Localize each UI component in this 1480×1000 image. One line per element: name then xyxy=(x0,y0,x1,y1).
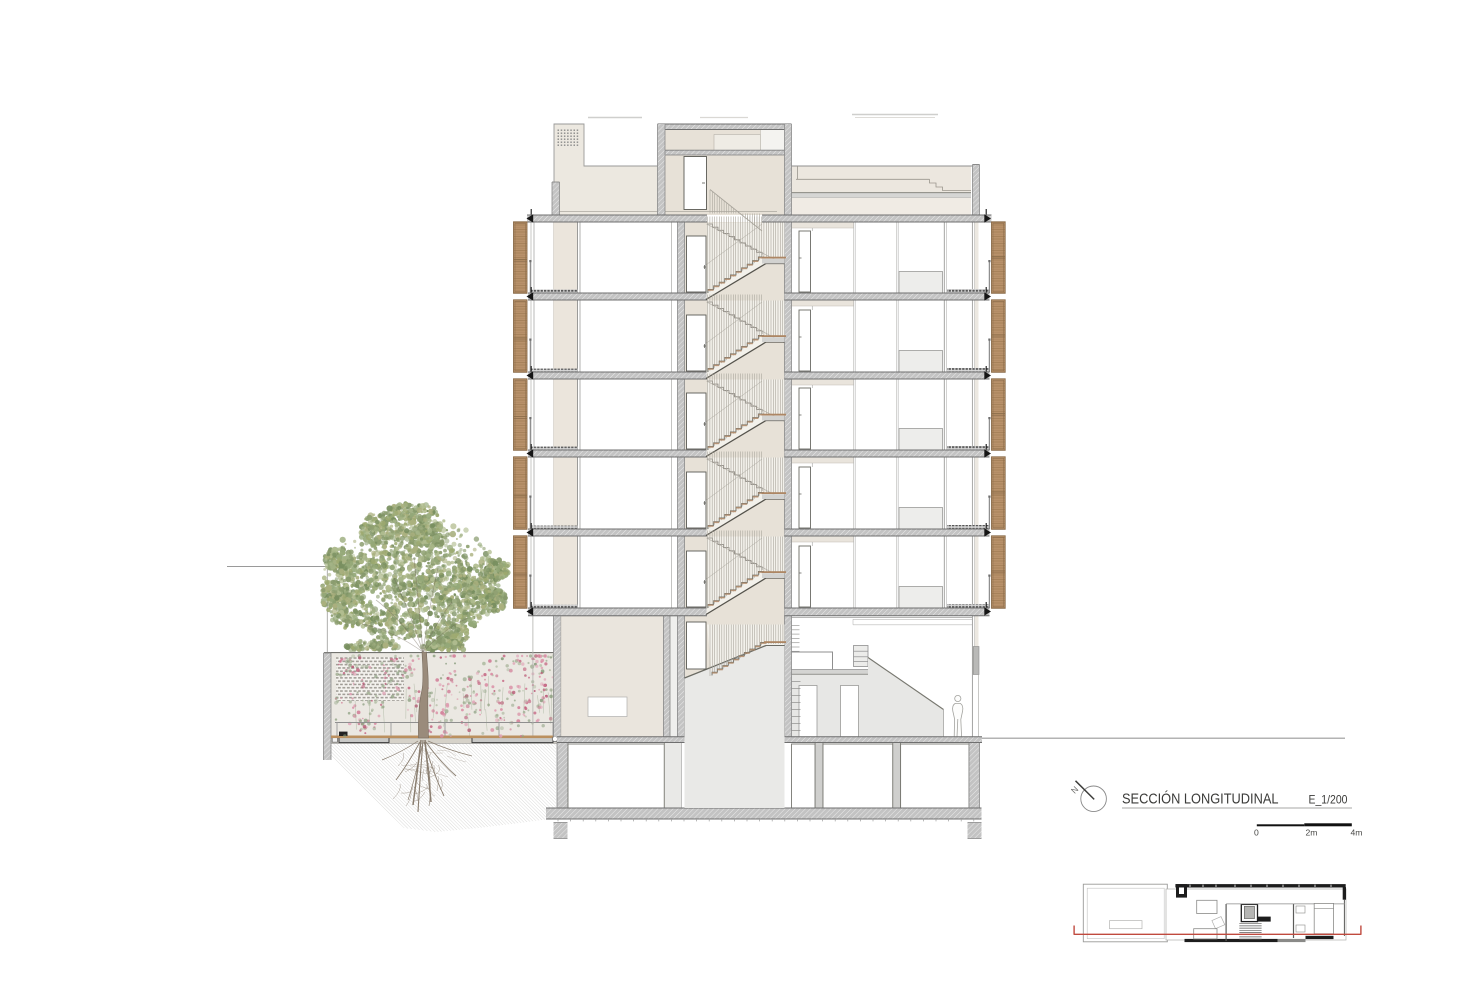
svg-text:2m: 2m xyxy=(1306,828,1318,838)
svg-text:SECCIÓN LONGITUDINAL: SECCIÓN LONGITUDINAL xyxy=(1122,791,1279,808)
svg-text:0: 0 xyxy=(1254,828,1259,838)
svg-text:4m: 4m xyxy=(1351,828,1363,838)
svg-text:E_1/200: E_1/200 xyxy=(1309,793,1348,807)
